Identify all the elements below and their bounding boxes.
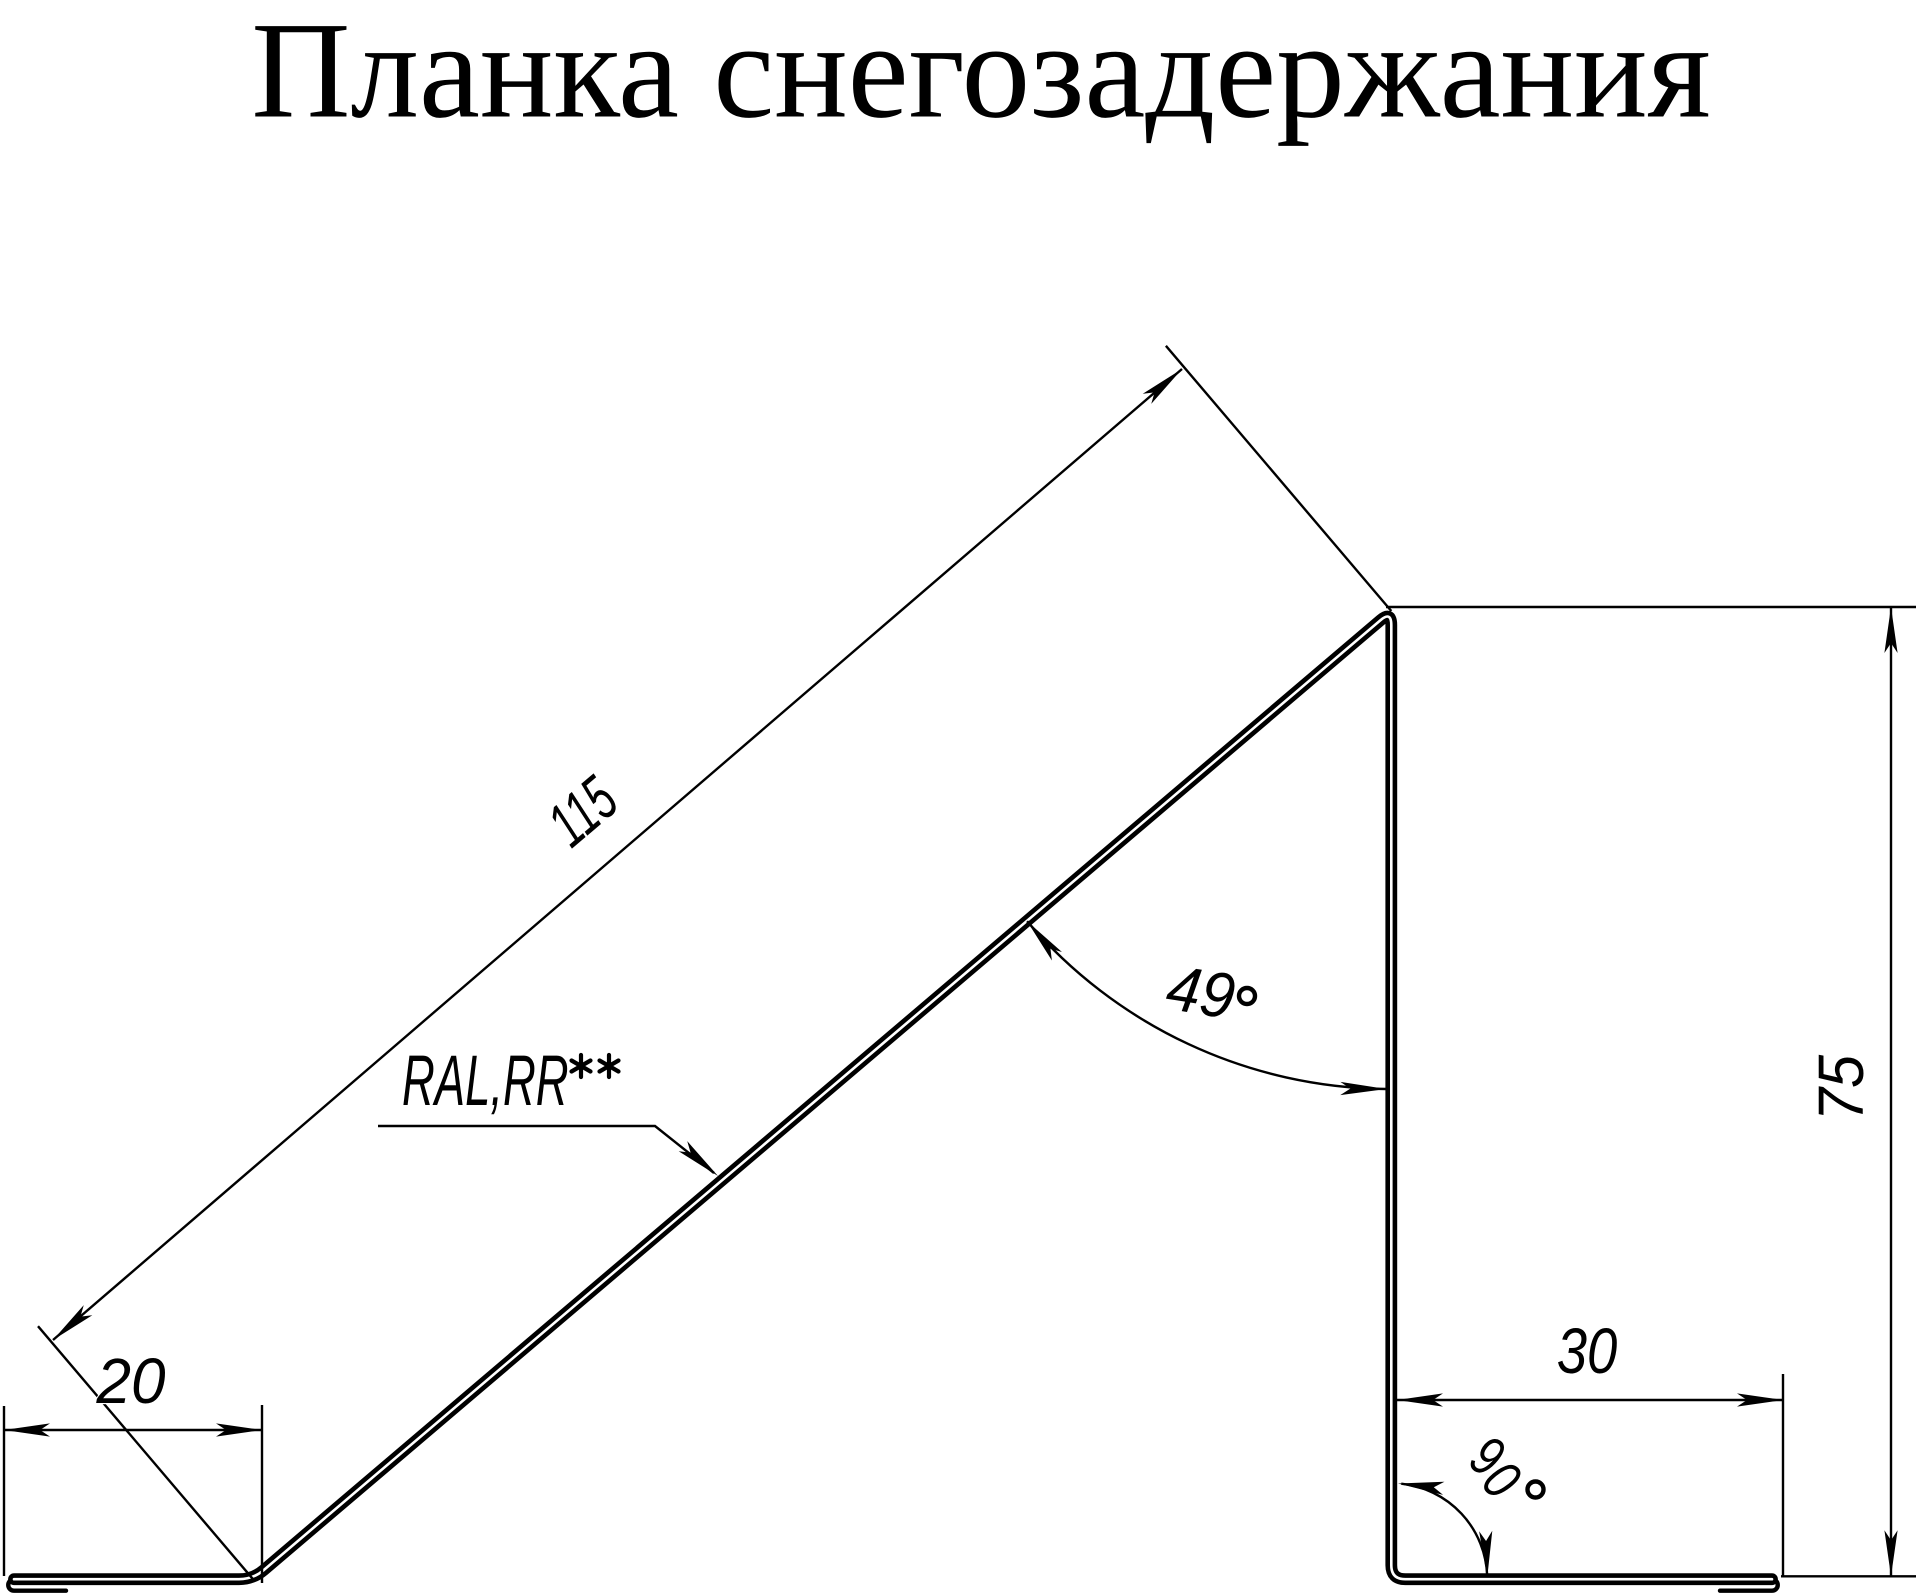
svg-text:75: 75	[1806, 1054, 1877, 1121]
svg-text:20: 20	[95, 1346, 165, 1417]
svg-text:49: 49	[1162, 952, 1240, 1033]
svg-text:30: 30	[1557, 1315, 1617, 1387]
svg-text:RAL,RR: RAL,RR	[402, 1041, 569, 1121]
svg-text:Планка снегозадержания: Планка снегозадержания	[251, 0, 1710, 147]
